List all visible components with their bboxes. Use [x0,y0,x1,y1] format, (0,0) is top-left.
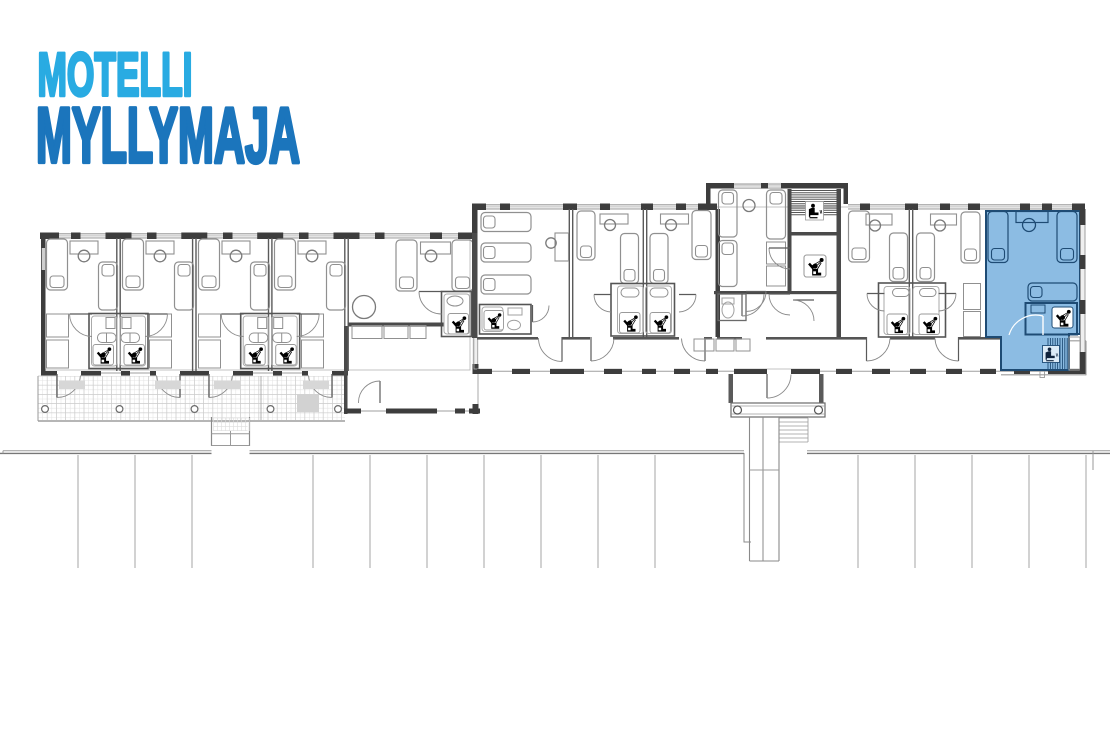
svg-text:MYLLYMAJA: MYLLYMAJA [36,91,300,179]
